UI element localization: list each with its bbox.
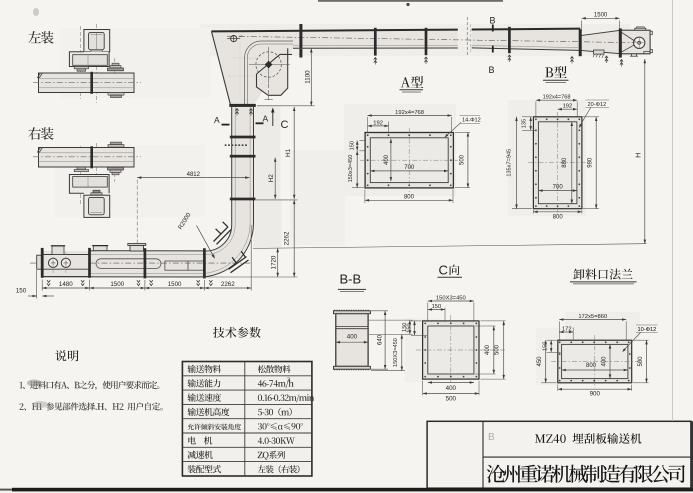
svg-text:800: 800 [586, 363, 597, 369]
svg-text:450: 450 [537, 356, 543, 367]
svg-text:172: 172 [562, 326, 572, 332]
svg-text:C: C [439, 263, 448, 278]
svg-text:900: 900 [590, 391, 601, 398]
svg-text:150: 150 [406, 323, 412, 332]
svg-text:1480: 1480 [59, 281, 73, 288]
svg-text:150: 150 [432, 304, 442, 310]
svg-text:150X3=450: 150X3=450 [436, 295, 466, 301]
svg-text:H2: H2 [268, 174, 275, 183]
svg-text:H1: H1 [285, 148, 292, 157]
svg-text:A: A [263, 114, 269, 124]
svg-text:B: B [490, 16, 496, 26]
svg-text:150: 150 [16, 288, 27, 295]
svg-text:1500: 1500 [168, 281, 182, 288]
svg-text:640: 640 [378, 334, 384, 345]
svg-text:400: 400 [485, 344, 491, 355]
svg-text:2262: 2262 [284, 231, 291, 245]
svg-text:H: H [635, 153, 642, 158]
svg-text:400: 400 [446, 385, 457, 392]
svg-text:1500: 1500 [594, 13, 608, 19]
svg-text:800: 800 [553, 215, 564, 221]
svg-text:135: 135 [522, 119, 528, 128]
svg-text:192: 192 [373, 120, 383, 126]
svg-text:B-B: B-B [340, 272, 362, 287]
svg-text:14-Φ12: 14-Φ12 [462, 118, 481, 124]
svg-text:500: 500 [460, 154, 466, 165]
svg-text:500: 500 [446, 395, 457, 402]
svg-text:2262: 2262 [221, 281, 235, 288]
svg-text:135x7=945: 135x7=945 [507, 149, 513, 177]
svg-text:400: 400 [384, 154, 390, 165]
svg-text:880: 880 [562, 157, 568, 168]
svg-text:1720: 1720 [271, 255, 278, 269]
svg-text:20-Φ12: 20-Φ12 [588, 102, 607, 108]
svg-text:980: 980 [588, 157, 594, 168]
svg-text:B: B [489, 65, 495, 75]
svg-text:400: 400 [347, 334, 358, 341]
svg-text:A: A [214, 115, 220, 125]
svg-text:700: 700 [553, 185, 564, 191]
svg-text:150: 150 [350, 141, 356, 150]
svg-text:700: 700 [404, 165, 415, 171]
svg-text:1100: 1100 [304, 70, 311, 84]
svg-text:500: 500 [495, 344, 501, 355]
svg-text:192: 192 [563, 104, 573, 110]
svg-text:500: 500 [638, 356, 644, 367]
svg-text:1500: 1500 [110, 281, 124, 288]
svg-text:172x5=860: 172x5=860 [578, 314, 607, 320]
svg-text:192x4=768: 192x4=768 [395, 110, 424, 116]
svg-text:400: 400 [601, 356, 607, 367]
svg-text:150X3=450: 150X3=450 [393, 338, 399, 367]
svg-text:192x4=768: 192x4=768 [543, 95, 571, 101]
svg-text:4812: 4812 [187, 172, 201, 178]
svg-text:C: C [281, 119, 289, 131]
svg-text:150x3=450: 150x3=450 [348, 155, 354, 183]
svg-text:B: B [488, 432, 495, 443]
svg-text:800: 800 [404, 195, 415, 201]
